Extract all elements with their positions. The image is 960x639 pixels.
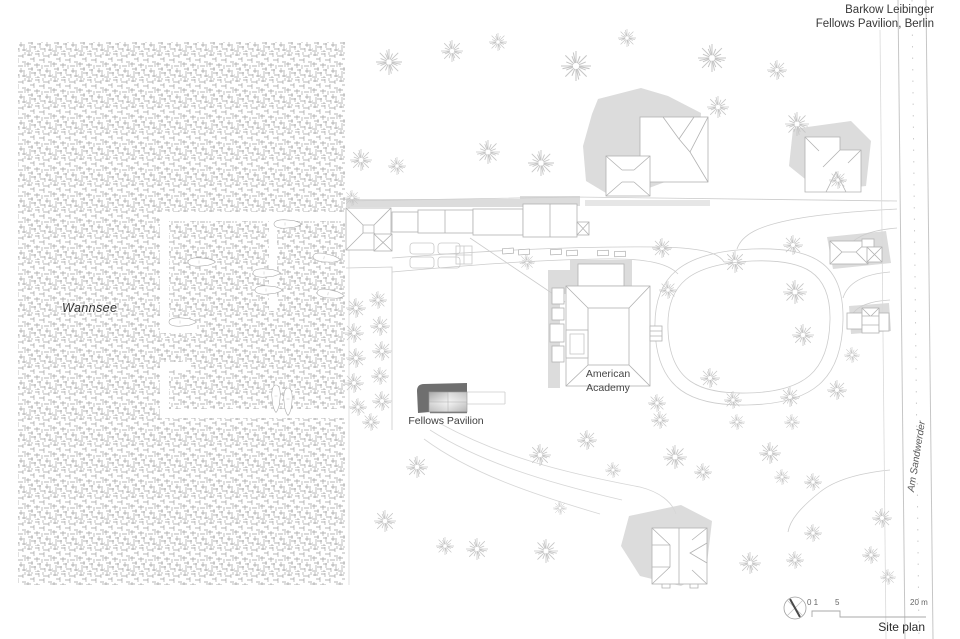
site-plan-drawing — [0, 0, 960, 639]
tree-symbol — [371, 367, 389, 385]
tree-symbol — [344, 323, 364, 343]
tree-symbol — [659, 281, 677, 299]
tree-symbol — [388, 157, 406, 175]
tree-symbol — [663, 445, 687, 469]
car-symbol — [502, 248, 513, 254]
car-symbol — [550, 249, 561, 255]
tree-symbol — [739, 552, 761, 574]
tree-symbol — [698, 44, 726, 72]
tree-symbol — [436, 537, 454, 555]
pier — [160, 409, 346, 418]
tree-symbol — [344, 190, 360, 206]
tree-symbol — [844, 347, 860, 363]
tree-symbol — [372, 341, 392, 361]
tree-symbol — [489, 33, 507, 51]
tree-symbol — [529, 444, 551, 466]
tree-symbol — [605, 462, 621, 478]
boathouse-row — [346, 204, 589, 251]
tree-symbol — [369, 291, 387, 309]
tree-symbol — [774, 469, 790, 485]
scale-zero-one: 0 1 — [807, 598, 818, 607]
tree-symbol — [783, 235, 803, 255]
tree-symbol — [783, 280, 807, 304]
project-name: Fellows Pavilion, Berlin — [816, 17, 934, 31]
tree-symbol — [441, 40, 463, 62]
tree-symbol — [350, 149, 372, 171]
tree-symbol — [406, 456, 428, 478]
tree-symbol — [872, 508, 892, 528]
tree-symbol — [700, 368, 720, 388]
tree-symbol — [553, 501, 567, 515]
tree-symbol — [528, 150, 554, 176]
scale-five: 5 — [835, 598, 839, 607]
tree-symbol — [376, 49, 402, 75]
site-plan-page: Barkow Leibinger Fellows Pavilion, Berli… — [0, 0, 960, 639]
tree-symbol — [362, 413, 380, 431]
tree-symbol — [786, 551, 804, 569]
tree-symbol — [804, 524, 822, 542]
tree-symbol — [618, 29, 636, 47]
american-academy-label: American Academy — [568, 367, 648, 395]
pier — [269, 221, 277, 311]
tree-symbol — [652, 238, 672, 258]
fellows-pavilion-building — [417, 383, 467, 413]
studio-name: Barkow Leibinger — [816, 3, 934, 17]
tree-symbol — [694, 463, 712, 481]
tree-symbol — [862, 546, 880, 564]
garden-parterres — [410, 243, 472, 268]
tree-symbol — [466, 538, 488, 560]
tree-symbol — [729, 414, 745, 430]
tree-symbol — [780, 387, 800, 407]
fellows-pavilion-label: Fellows Pavilion — [396, 415, 496, 427]
tree-symbol — [804, 473, 822, 491]
tree-symbol — [534, 539, 558, 563]
tree-symbol — [374, 510, 396, 532]
pier — [160, 212, 346, 221]
car-symbol — [518, 249, 529, 255]
water-label: Wannsee — [62, 301, 117, 315]
tree-symbol — [767, 60, 787, 80]
scale-bar — [812, 611, 926, 617]
tree-symbol — [648, 394, 666, 412]
tree-symbol — [880, 569, 896, 585]
north-arrow-icon — [784, 597, 806, 619]
tree-symbol — [370, 316, 390, 336]
tree-symbol — [577, 430, 597, 450]
car-symbol — [597, 250, 608, 256]
tree-symbol — [651, 411, 669, 429]
buildings — [346, 117, 889, 588]
tree-symbol — [476, 140, 500, 164]
pier — [160, 362, 191, 370]
tree-symbol — [344, 373, 364, 393]
tree-symbol — [792, 324, 814, 346]
tree-symbol — [785, 112, 809, 136]
tree-symbol — [784, 414, 800, 430]
tree-symbol — [346, 298, 366, 318]
tree-symbol — [349, 398, 367, 416]
tree-symbol — [724, 391, 742, 409]
tree-symbol — [372, 391, 392, 411]
tree-symbol — [707, 96, 729, 118]
gatehouse — [830, 239, 882, 264]
caption-site-plan: Site plan — [878, 620, 925, 634]
tree-symbol — [827, 380, 847, 400]
scale-twenty: 20 m — [910, 598, 928, 607]
car-symbol — [566, 250, 577, 256]
tree-symbol — [759, 442, 781, 464]
parked-cars — [502, 248, 625, 257]
tree-symbol — [346, 348, 366, 368]
tree-symbol — [561, 51, 591, 81]
car-symbol — [614, 251, 625, 257]
villa-south — [652, 528, 707, 588]
drawing-title: Barkow Leibinger Fellows Pavilion, Berli… — [816, 3, 934, 31]
pier — [160, 221, 169, 333]
